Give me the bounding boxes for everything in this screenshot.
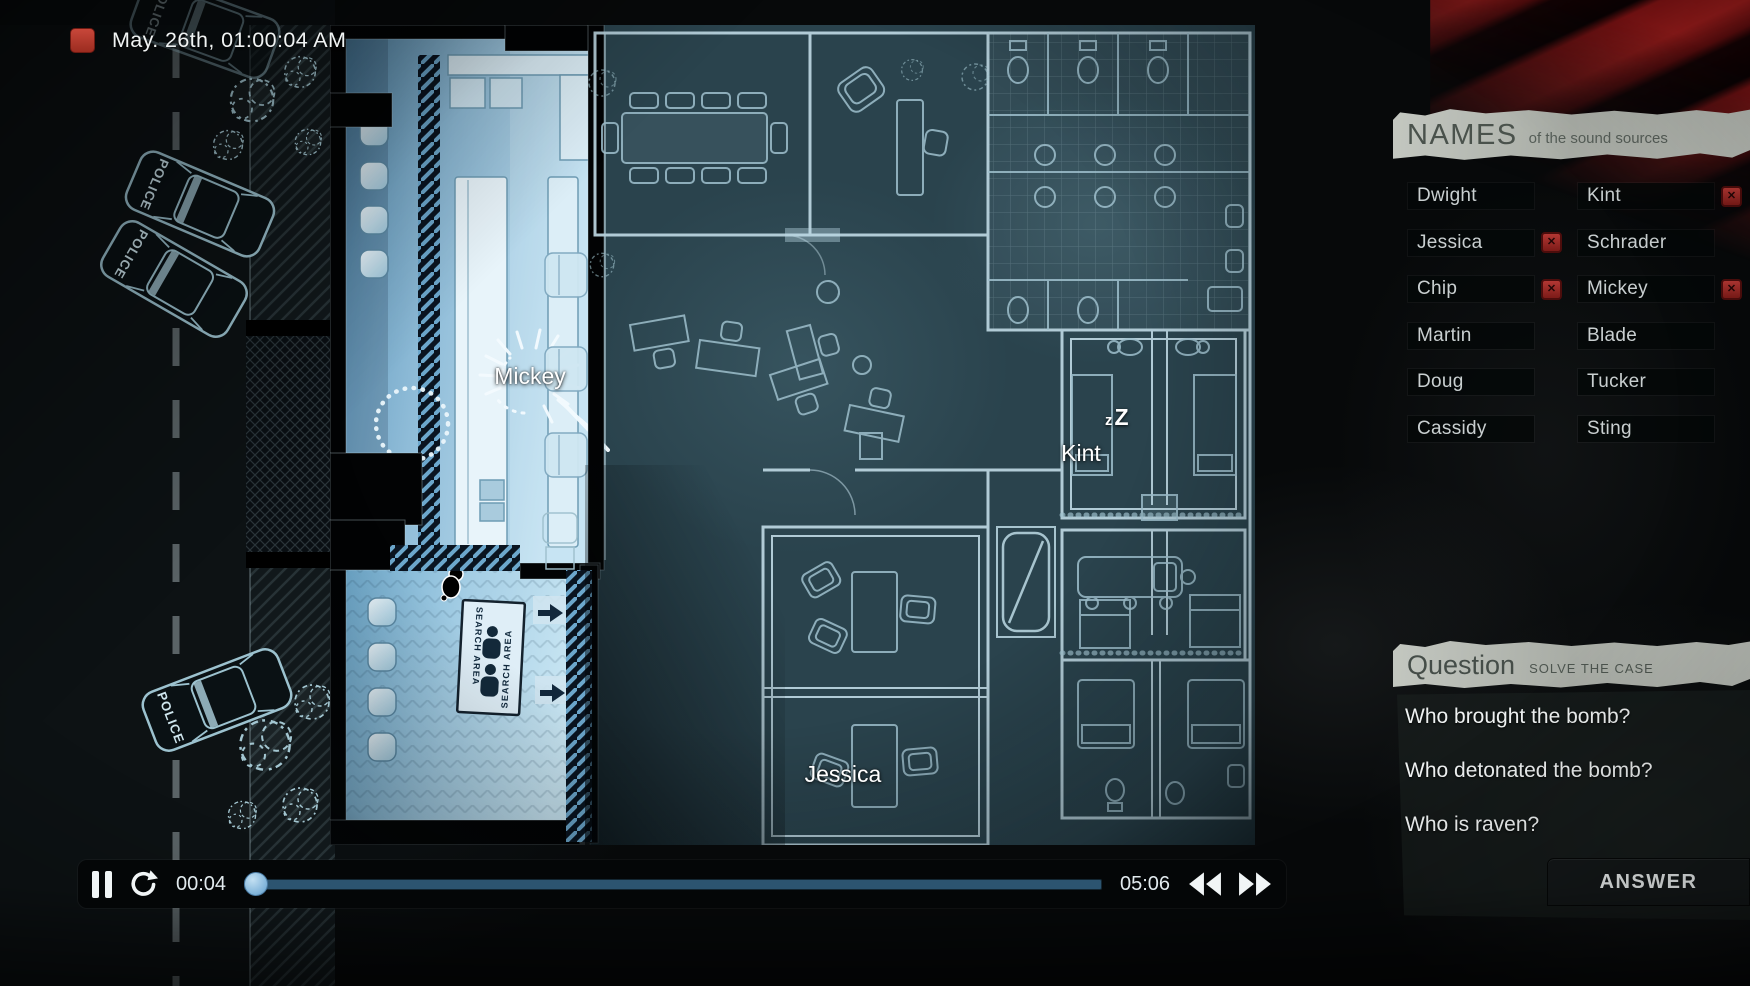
question-item[interactable]: Who is raven? (1405, 813, 1539, 837)
name-label: Cassidy (1417, 418, 1487, 440)
name-chip-mickey[interactable]: Mickey (1578, 276, 1714, 302)
question-item[interactable]: Who brought the bomb? (1405, 705, 1630, 729)
pause-button[interactable] (92, 871, 112, 898)
name-label: Jessica (1417, 232, 1482, 254)
remove-name-icon[interactable]: ✕ (1541, 232, 1562, 253)
pause-bar (105, 871, 112, 898)
pause-bar (92, 871, 99, 898)
rewind-icon (1188, 872, 1222, 896)
x-glyph: ✕ (1547, 284, 1556, 295)
fence-gate (246, 320, 335, 568)
progress-track[interactable] (244, 879, 1102, 890)
remove-name-icon[interactable]: ✕ (1541, 279, 1562, 300)
floor-plan[interactable]: SEARCH AREA SEARCH AREA (330, 25, 1255, 845)
plan-vignette (330, 25, 1255, 845)
name-label: Mickey (1587, 278, 1648, 300)
name-chip-kint[interactable]: Kint (1578, 183, 1714, 209)
name-label: Chip (1417, 278, 1457, 300)
name-label: Kint (1587, 185, 1621, 207)
question-panel-header: Question SOLVE THE CASE (1393, 640, 1750, 690)
remove-name-icon[interactable]: ✕ (1721, 279, 1742, 300)
name-chip-cassidy[interactable]: Cassidy (1408, 416, 1534, 442)
x-glyph: ✕ (1727, 284, 1736, 295)
name-cell: Jessica✕ (1408, 230, 1578, 256)
question-item[interactable]: Who detonated the bomb? (1405, 759, 1653, 783)
current-time: 00:04 (174, 873, 228, 896)
total-time: 05:06 (1118, 873, 1172, 896)
name-cell: Schrader✕ (1578, 230, 1750, 256)
sleep-z-small: z (1105, 412, 1113, 429)
game-screen: POLICE (0, 0, 1750, 986)
name-chip-schrader[interactable]: Schrader (1578, 230, 1714, 256)
x-glyph: ✕ (1547, 237, 1556, 248)
fast-forward-icon (1238, 872, 1272, 896)
name-label: Schrader (1587, 232, 1667, 254)
question-panel: Question SOLVE THE CASE Who brought the … (1393, 640, 1750, 930)
name-chip-chip[interactable]: Chip (1408, 276, 1534, 302)
sleep-indicator: zZ (1105, 404, 1129, 431)
fast-forward-button[interactable] (1238, 872, 1272, 896)
names-panel: NAMES of the sound sources Dwight✕ Kint✕… (1393, 100, 1750, 450)
name-chip-martin[interactable]: Martin (1408, 323, 1534, 349)
playback-bar: 00:04 05:06 (78, 860, 1286, 908)
name-cell: Doug✕ (1408, 369, 1578, 395)
names-panel-header: NAMES of the sound sources (1393, 108, 1750, 162)
name-chip-doug[interactable]: Doug (1408, 369, 1534, 395)
names-grid: Dwight✕ Kint✕ Jessica✕ Schrader✕ Chip✕ M… (1408, 183, 1750, 442)
replay-button[interactable] (128, 869, 158, 899)
map-label-mickey: Mickey (468, 363, 592, 390)
replay-icon (128, 869, 158, 899)
name-chip-blade[interactable]: Blade (1578, 323, 1714, 349)
name-label: Dwight (1417, 185, 1477, 207)
name-cell: Kint✕ (1578, 183, 1750, 209)
name-cell: Dwight✕ (1408, 183, 1578, 209)
x-glyph: ✕ (1727, 191, 1736, 202)
rewind-button[interactable] (1188, 872, 1222, 896)
name-chip-dwight[interactable]: Dwight (1408, 183, 1534, 209)
name-label: Blade (1587, 325, 1637, 347)
record-icon (70, 28, 95, 53)
remove-name-icon[interactable]: ✕ (1721, 186, 1742, 207)
map-label-jessica: Jessica (788, 761, 898, 788)
name-chip-tucker[interactable]: Tucker (1578, 369, 1714, 395)
name-cell: Martin✕ (1408, 323, 1578, 349)
name-cell: Sting✕ (1578, 416, 1750, 442)
timestamp-text: May. 26th, 01:00:04 AM (112, 28, 346, 53)
name-cell: Blade✕ (1578, 323, 1750, 349)
sleep-z-big: Z (1115, 404, 1129, 430)
names-title: NAMES (1407, 119, 1518, 152)
question-title: Question (1407, 650, 1515, 681)
name-cell: Chip✕ (1408, 276, 1578, 302)
name-label: Sting (1587, 418, 1632, 440)
answer-button-label: ANSWER (1600, 871, 1698, 894)
name-label: Martin (1417, 325, 1472, 347)
name-label: Doug (1417, 371, 1464, 393)
name-cell: Tucker✕ (1578, 369, 1750, 395)
name-label: Tucker (1587, 371, 1646, 393)
name-chip-sting[interactable]: Sting (1578, 416, 1714, 442)
question-subtitle: SOLVE THE CASE (1529, 654, 1654, 676)
names-subtitle: of the sound sources (1529, 124, 1668, 147)
street-scene: POLICE (0, 0, 335, 986)
name-chip-jessica[interactable]: Jessica (1408, 230, 1534, 256)
progress-knob[interactable] (244, 872, 268, 896)
name-cell: Cassidy✕ (1408, 416, 1578, 442)
name-cell: Mickey✕ (1578, 276, 1750, 302)
timestamp-row: May. 26th, 01:00:04 AM (70, 28, 346, 53)
answer-button[interactable]: ANSWER (1547, 858, 1750, 906)
map-label-kint: Kint (1046, 440, 1116, 467)
